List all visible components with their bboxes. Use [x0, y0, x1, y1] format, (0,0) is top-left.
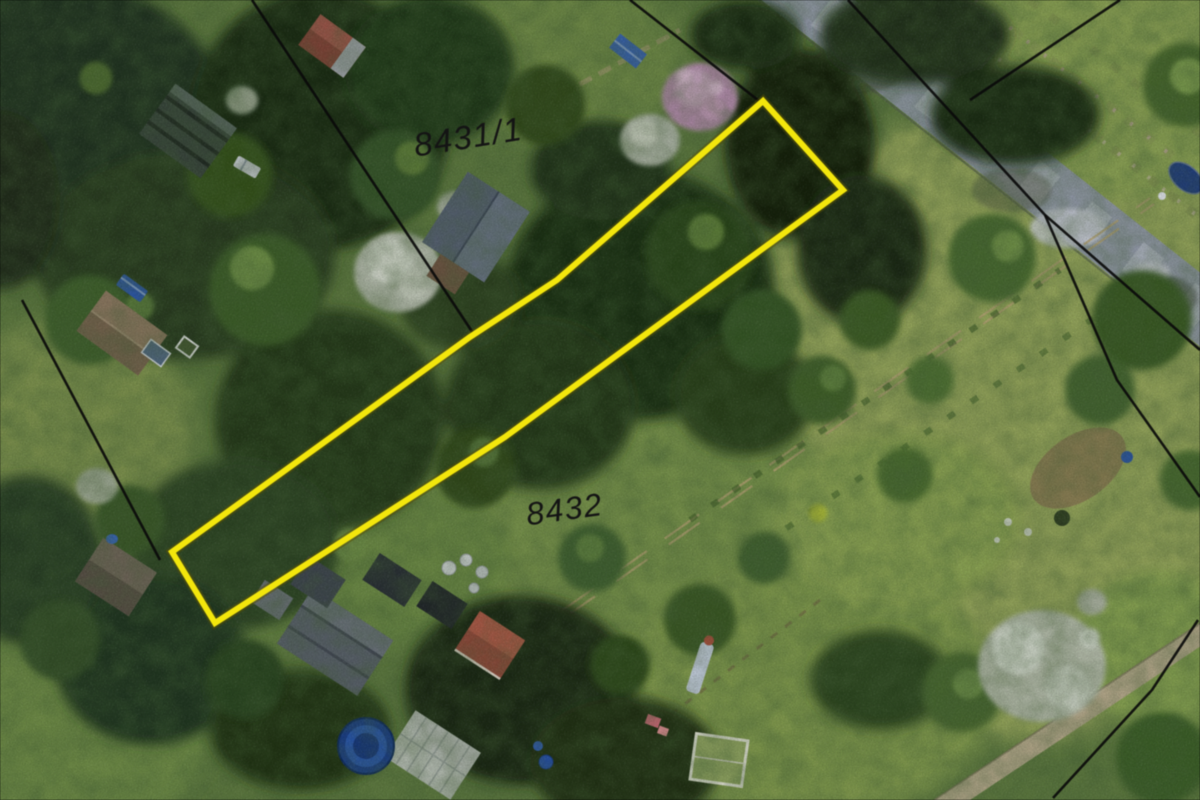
photo-grain-light [0, 0, 1200, 800]
aerial-map-image: 8431/1 8432 [0, 0, 1200, 800]
aerial-photo: 8431/1 8432 [0, 0, 1200, 800]
